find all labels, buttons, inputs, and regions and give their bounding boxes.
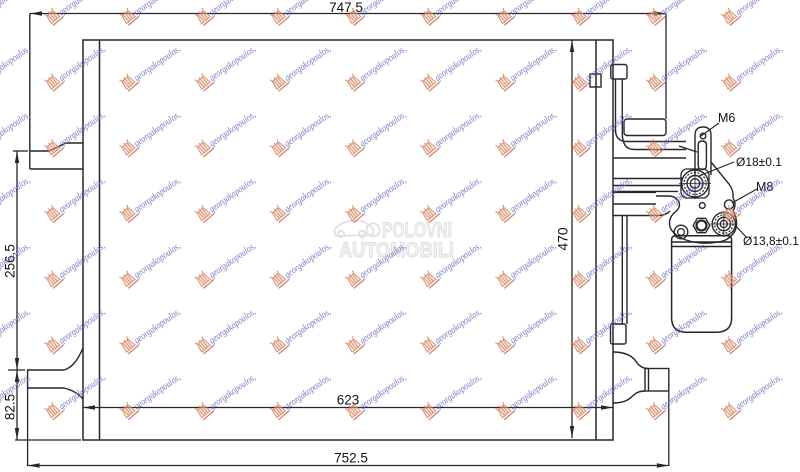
svg-text:M6: M6 (718, 111, 735, 125)
svg-text:470: 470 (555, 227, 571, 251)
svg-text:623: 623 (337, 393, 360, 408)
svg-text:752.5: 752.5 (334, 451, 368, 466)
svg-text:Ø18±0.1: Ø18±0.1 (736, 155, 782, 169)
svg-text:747.5: 747.5 (329, 0, 363, 15)
